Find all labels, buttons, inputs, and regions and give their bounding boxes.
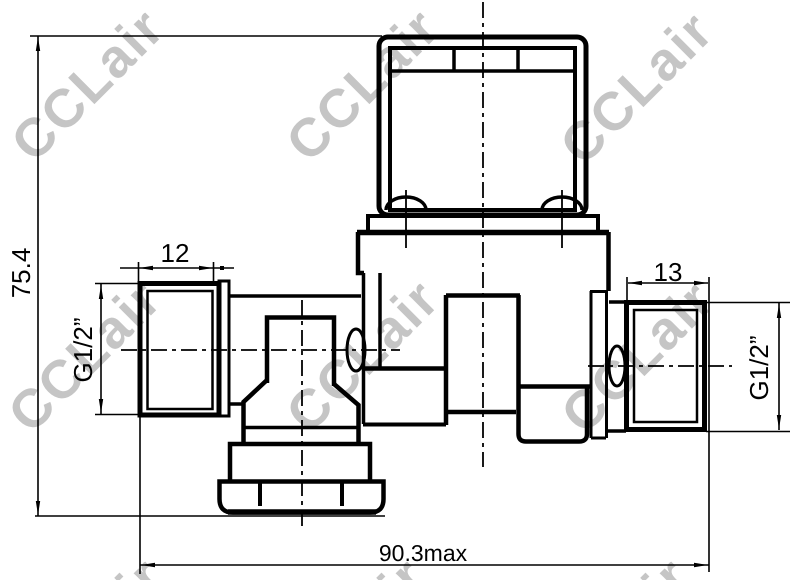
- svg-text:G1/2”: G1/2”: [744, 335, 774, 400]
- svg-text:12: 12: [161, 238, 190, 268]
- svg-text:13: 13: [654, 257, 683, 287]
- svg-text:G1/2”: G1/2”: [68, 317, 98, 382]
- svg-text:90.3max: 90.3max: [379, 540, 468, 566]
- svg-text:75.4: 75.4: [6, 248, 36, 299]
